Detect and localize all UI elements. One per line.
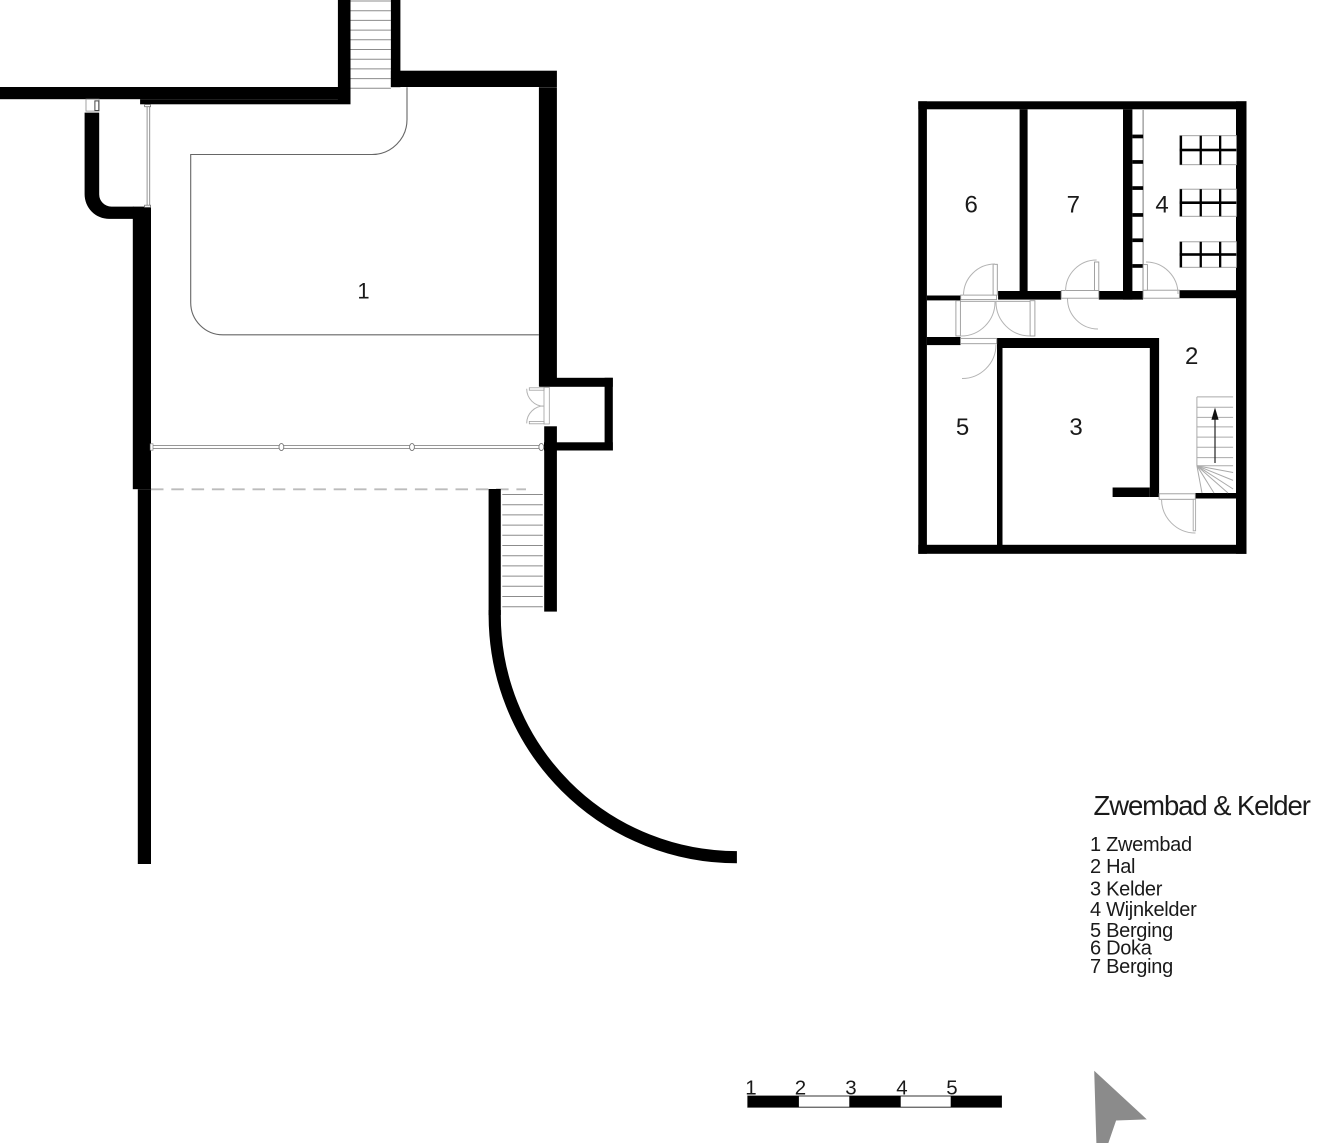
svg-text:6: 6 — [965, 192, 978, 219]
svg-text:3: 3 — [845, 1076, 856, 1099]
svg-text:7 Berging: 7 Berging — [1090, 956, 1173, 978]
svg-text:1 Zwembad: 1 Zwembad — [1090, 834, 1192, 856]
svg-text:3 Kelder: 3 Kelder — [1090, 878, 1163, 900]
svg-text:2: 2 — [1185, 343, 1198, 370]
svg-text:5: 5 — [956, 414, 969, 441]
svg-text:Zwembad & Kelder: Zwembad & Kelder — [1094, 790, 1311, 821]
svg-text:2: 2 — [795, 1076, 806, 1099]
svg-text:4: 4 — [896, 1076, 907, 1099]
svg-text:1: 1 — [357, 279, 369, 304]
svg-text:4 Wijnkelder: 4 Wijnkelder — [1090, 899, 1197, 921]
svg-text:7: 7 — [1067, 192, 1080, 219]
svg-text:5: 5 — [946, 1076, 957, 1099]
svg-text:1: 1 — [745, 1076, 756, 1099]
svg-text:4: 4 — [1155, 192, 1168, 219]
svg-text:3: 3 — [1069, 414, 1082, 441]
svg-text:2 Hal: 2 Hal — [1090, 856, 1135, 878]
